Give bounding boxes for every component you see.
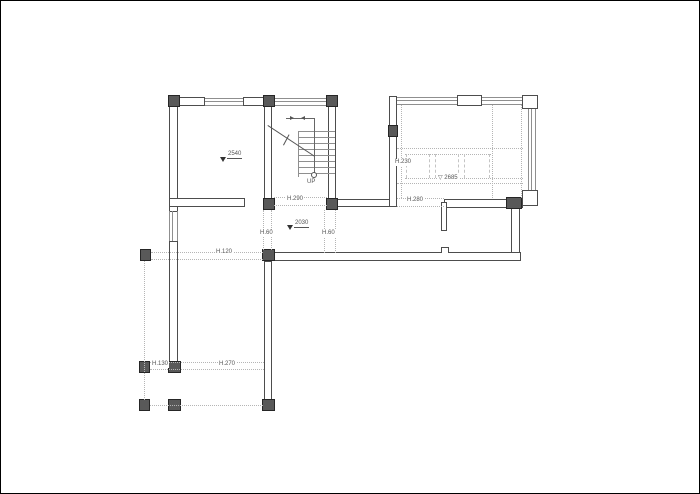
floor-plan-canvas: UP 2540 2030 H.290 H.280 H.230 ▽ 2685 H.… [0, 0, 700, 494]
porch-edge-left [144, 261, 145, 400]
wall-stair-left [264, 96, 272, 209]
column [263, 198, 275, 210]
window-frame-room1-b [243, 97, 264, 106]
opening-h120-line [151, 252, 263, 253]
window-room2-right [528, 109, 536, 190]
level-marker-icon [220, 157, 226, 162]
label-h60-left: H.60 [259, 230, 274, 237]
column [263, 95, 275, 107]
porch-mid-line [150, 369, 264, 370]
wall-lowerright-right [511, 207, 520, 253]
ceiling-grid-line [521, 105, 522, 198]
label-h280: H.280 [406, 197, 424, 204]
ceiling-grid-line [492, 105, 493, 198]
stair-start-circle [311, 172, 317, 178]
label-h60-right: H.60 [321, 230, 336, 237]
stair-center-rail [314, 118, 315, 176]
column [139, 399, 150, 411]
ceiling-grid-line [429, 154, 430, 178]
ceiling-grid-line [405, 154, 491, 155]
label-h230: H.230 [394, 159, 412, 166]
wall-stair-to-room2 [336, 199, 390, 207]
stair-arrow-icon [290, 116, 294, 120]
wall-room2-left [389, 96, 397, 207]
window-room1-top [205, 98, 243, 106]
level-marker-icon [287, 225, 293, 230]
wall-room1-bottom [169, 198, 245, 207]
label-h120: H.120 [215, 249, 233, 256]
label-h290: H.290 [286, 196, 304, 203]
label-h270: H.270 [218, 361, 236, 368]
ceiling-grid-line [464, 154, 465, 178]
column [506, 197, 522, 209]
window-left-wall [169, 211, 178, 242]
corner-column-room2-bottomright [522, 190, 538, 206]
window-room2-top-b [482, 97, 522, 105]
opening-h290-line [274, 205, 327, 206]
opening-h120-line [151, 259, 263, 260]
stair-arrow-icon [301, 116, 305, 120]
label-h130: H.130 [151, 361, 169, 368]
wall-long-bottom [264, 252, 521, 261]
column [262, 249, 275, 261]
level-label-room: 2540 [227, 151, 242, 159]
column [388, 125, 398, 137]
column [326, 198, 338, 210]
opening-h280-line [397, 206, 444, 207]
ceiling-grid-line [397, 183, 523, 184]
ceiling-grid-line [435, 154, 436, 178]
window-stair-top [272, 98, 328, 106]
column [326, 95, 338, 107]
window-frame-room1-a [178, 97, 205, 106]
ceiling-grid-line [489, 154, 490, 178]
column [168, 95, 180, 107]
ceiling-grid-line [397, 148, 523, 149]
ceiling-grid-line [406, 154, 407, 178]
level-label-hall: 2030 [294, 220, 309, 228]
wall-lowerleft-vertical [264, 261, 272, 406]
ceiling-grid-line [405, 178, 523, 179]
column [140, 249, 151, 261]
column [262, 399, 275, 411]
porch-bottom-line [150, 405, 263, 406]
label-ceiling-2685: ▽ 2685 [437, 175, 459, 182]
wall-left-upper [169, 96, 178, 212]
window-mullion-room2 [457, 95, 482, 106]
window-room2-top-a [397, 97, 457, 105]
ceiling-grid-line [401, 105, 402, 198]
corner-column-room2-topright [522, 95, 538, 109]
door-notch [441, 247, 449, 253]
stair-treads [298, 131, 335, 177]
stair-up-label: UP [306, 179, 316, 186]
